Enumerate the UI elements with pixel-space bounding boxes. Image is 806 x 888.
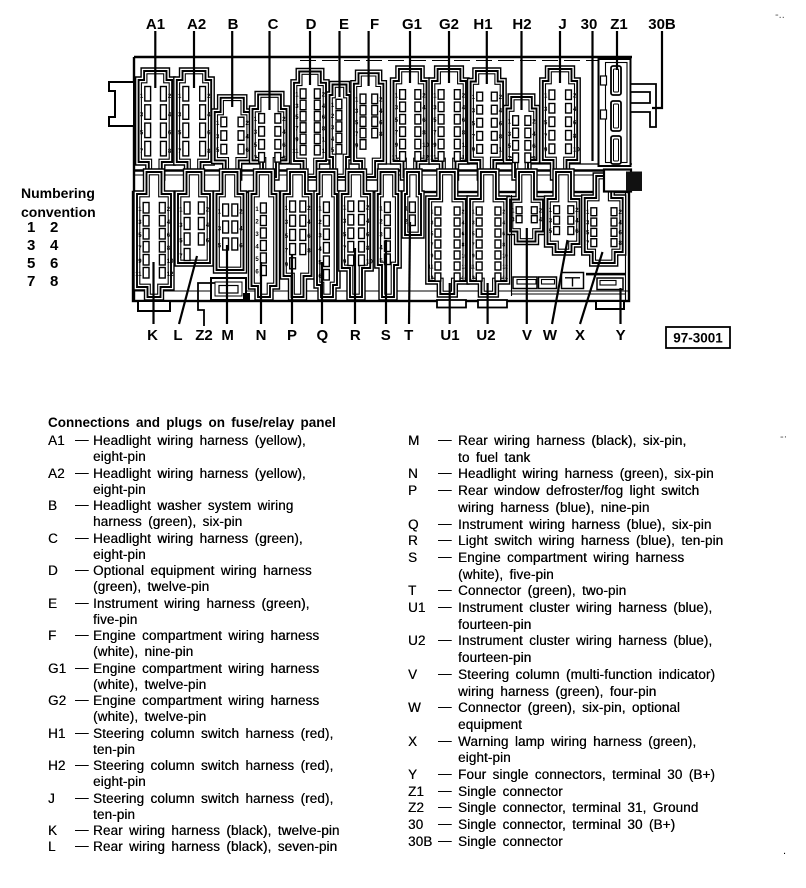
svg-text:5: 5: [431, 231, 434, 237]
svg-text:J: J: [558, 16, 566, 33]
svg-text:9: 9: [431, 253, 434, 259]
svg-text:11: 11: [430, 155, 437, 161]
svg-text:E: E: [339, 16, 349, 33]
svg-text:5: 5: [472, 231, 475, 237]
svg-text:-..: -..: [775, 9, 785, 21]
svg-text:3: 3: [431, 220, 434, 226]
svg-text:11: 11: [135, 272, 142, 278]
svg-text:X: X: [575, 327, 585, 344]
svg-text:6: 6: [502, 231, 505, 237]
svg-text:13: 13: [428, 275, 434, 281]
svg-text:2: 2: [502, 209, 505, 215]
svg-text:U2: U2: [476, 327, 495, 344]
svg-text:10: 10: [573, 148, 580, 154]
svg-text:L: L: [173, 327, 182, 344]
svg-text:P: P: [287, 327, 297, 344]
svg-text:S: S: [381, 327, 391, 344]
svg-text:F: F: [370, 16, 379, 33]
svg-text:T: T: [404, 327, 413, 344]
svg-text:3: 3: [472, 220, 475, 226]
svg-text:9: 9: [472, 253, 475, 259]
svg-text:C: C: [268, 16, 279, 33]
svg-text:1: 1: [472, 209, 475, 215]
svg-text:Q: Q: [316, 327, 328, 344]
svg-text:4: 4: [502, 220, 505, 226]
svg-text:12: 12: [502, 264, 508, 270]
svg-text:G2: G2: [439, 16, 459, 33]
svg-text:2: 2: [462, 209, 465, 215]
svg-text:Y: Y: [616, 327, 626, 344]
svg-text:H2: H2: [512, 16, 531, 33]
svg-text:8: 8: [462, 242, 465, 248]
svg-text:12: 12: [167, 272, 174, 278]
svg-text:D: D: [306, 16, 317, 33]
svg-text:11: 11: [428, 264, 434, 270]
svg-text:M: M: [221, 327, 234, 344]
svg-text:30B: 30B: [648, 16, 676, 33]
svg-text:30: 30: [581, 16, 598, 33]
svg-text:Z2: Z2: [195, 327, 213, 344]
svg-text:B: B: [228, 16, 239, 33]
svg-text:10: 10: [502, 253, 508, 259]
svg-text:W: W: [543, 327, 558, 344]
svg-text:97-3001: 97-3001: [673, 331, 723, 346]
svg-text:A1: A1: [146, 16, 165, 33]
svg-text:V: V: [522, 327, 532, 344]
svg-text:U1: U1: [440, 327, 459, 344]
svg-text:G1: G1: [402, 16, 422, 33]
svg-text:4: 4: [462, 220, 465, 226]
svg-text:8: 8: [502, 242, 505, 248]
svg-text:13: 13: [469, 275, 475, 281]
svg-text:6: 6: [462, 231, 465, 237]
svg-text:14: 14: [502, 275, 508, 281]
svg-text:11: 11: [292, 149, 299, 155]
svg-text:7: 7: [472, 242, 475, 248]
svg-text:10: 10: [167, 259, 174, 265]
svg-text:Z1: Z1: [610, 16, 628, 33]
svg-text:A2: A2: [187, 16, 206, 33]
svg-text:1: 1: [431, 209, 434, 215]
svg-text:11: 11: [469, 264, 475, 270]
svg-text:H1: H1: [473, 16, 492, 33]
svg-text:R: R: [350, 327, 361, 344]
svg-text:7: 7: [431, 242, 434, 248]
svg-text:10: 10: [366, 259, 373, 265]
svg-text:11: 11: [392, 155, 399, 161]
svg-text:N: N: [256, 327, 267, 344]
svg-text:K: K: [147, 327, 158, 344]
